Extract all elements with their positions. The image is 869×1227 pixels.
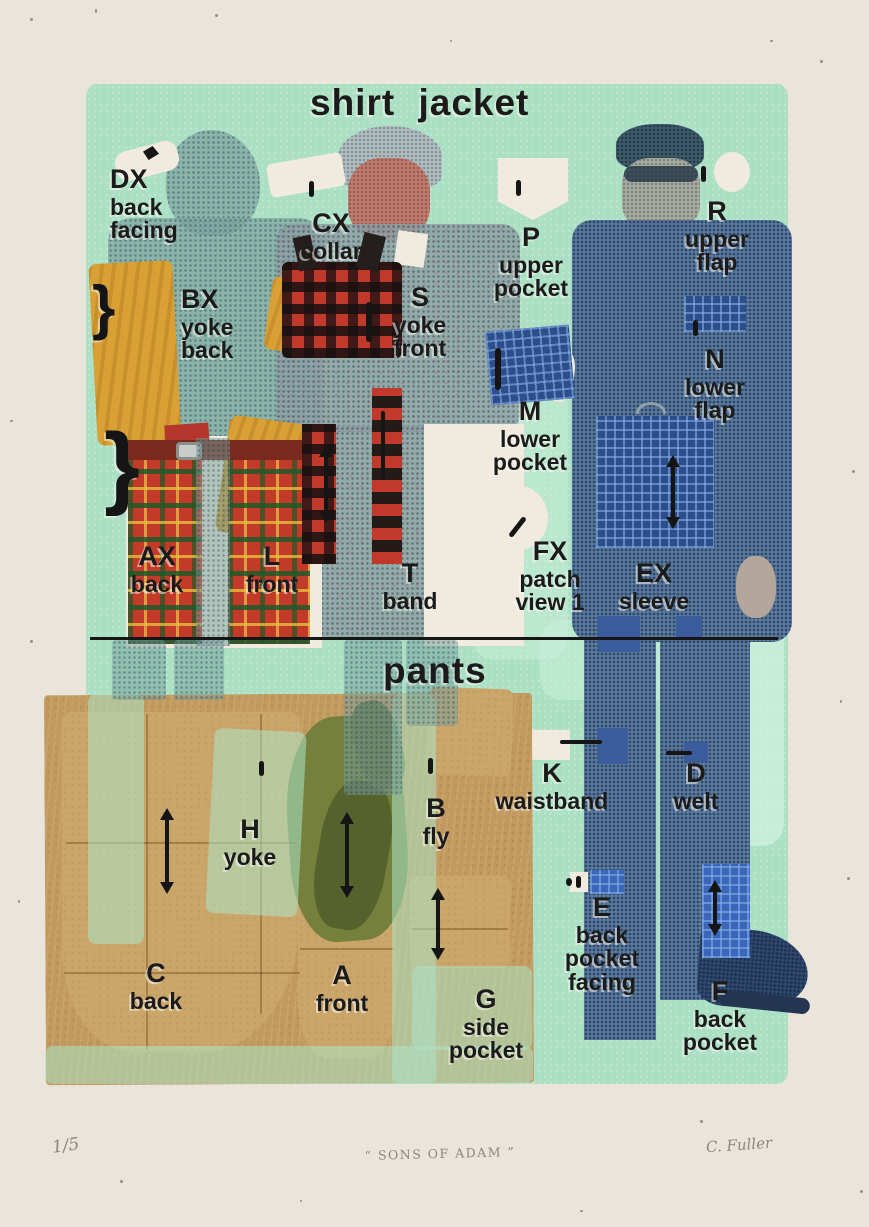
navy-patch (598, 728, 628, 764)
pattern-label-n: N lower flap (676, 346, 754, 423)
white-scrap (714, 152, 750, 192)
pattern-label-l: L front (236, 543, 308, 596)
green-wash (88, 694, 144, 944)
pattern-name: lower flap (676, 376, 754, 423)
right-man-hand (736, 556, 776, 618)
pattern-label-dx: DX back facing (110, 166, 220, 243)
pattern-code: EX (606, 560, 702, 587)
grain-line (381, 411, 385, 479)
pattern-label-ax: AX back (122, 543, 192, 596)
pattern-name: sleeve (606, 590, 702, 613)
artwork-title: “ SONS OF ADAM ” (355, 1144, 525, 1163)
pattern-code: B (408, 795, 464, 822)
pattern-code: D (662, 760, 730, 787)
pattern-label-m: M lower pocket (484, 398, 576, 475)
paper-speck (450, 40, 452, 42)
pattern-code: A (304, 962, 380, 989)
paper-speck (120, 1180, 123, 1183)
pattern-name: yoke back (181, 316, 267, 363)
grain-arrow (707, 880, 723, 936)
pattern-code: K (482, 760, 622, 787)
pattern-name: back pocket facing (550, 924, 654, 994)
pattern-name: upper pocket (489, 254, 573, 301)
notch-tick (428, 758, 433, 774)
ghost-leg-column (196, 438, 230, 646)
notch-dot (566, 878, 572, 886)
artist-signature: C. Fuller (705, 1134, 772, 1157)
blue-patch-e (590, 870, 624, 894)
pattern-label-f: F back pocket (668, 978, 772, 1055)
grain-arrow (339, 812, 355, 898)
paper-speck (10, 420, 13, 422)
blue-plaid-sleeve-ex (596, 416, 714, 548)
pattern-label-r: R upper flap (678, 198, 756, 275)
paper-speck (580, 1210, 583, 1212)
ghost-leg-column (174, 640, 224, 700)
notch-tick (259, 761, 264, 776)
paper-speck (95, 9, 97, 13)
grain-arrow (318, 445, 334, 523)
band-fabric-strip (372, 388, 402, 564)
notch-tick (309, 181, 314, 197)
grain-arrow (665, 455, 681, 529)
pattern-name: band (374, 590, 446, 613)
pattern-code: G (436, 986, 536, 1013)
ghost-leg-column (112, 640, 166, 700)
brace-mark: } (92, 278, 115, 338)
paper-speck (30, 640, 33, 643)
pattern-code: P (489, 224, 573, 251)
pattern-code: H (212, 816, 288, 843)
pattern-label-h: H yoke (212, 816, 288, 869)
pattern-name: fly (408, 825, 464, 848)
pattern-label-bx: BX yoke back (181, 286, 267, 363)
paper-speck (840, 700, 842, 703)
brace-mark: } (104, 420, 140, 512)
pattern-name: lower pocket (484, 428, 576, 475)
pattern-name: back (122, 573, 192, 596)
pattern-name: waistband (482, 790, 622, 813)
paper-speck (847, 877, 850, 880)
right-man-glasses (624, 166, 698, 182)
paper-speck (18, 900, 20, 903)
paper-speck (820, 60, 823, 63)
pattern-name: front (236, 573, 308, 596)
pattern-name: yoke front (378, 314, 462, 361)
pattern-code: S (378, 284, 462, 311)
buttonhole-mark (366, 302, 372, 342)
pattern-label-c: C back (118, 960, 194, 1013)
pattern-code: DX (110, 166, 220, 193)
welt-dash (666, 751, 692, 755)
pattern-code: CX (288, 210, 374, 237)
paper-speck (215, 14, 218, 17)
pattern-code: FX (502, 538, 598, 565)
pattern-code: N (676, 346, 754, 373)
pattern-name: upper flap (678, 228, 756, 275)
pattern-code: T (374, 560, 446, 587)
pattern-name: patch view 1 (502, 568, 598, 615)
pattern-label-b: B fly (408, 795, 464, 848)
pattern-name: yoke (212, 846, 288, 869)
edition-number: 1/5 (51, 1134, 81, 1158)
art-print: } } shirt jacket pants DX back facing CX… (0, 0, 869, 1227)
pattern-label-cx: CX collar (288, 210, 374, 263)
pattern-name: collar (288, 240, 374, 263)
paper-speck (30, 18, 33, 21)
navy-patch (598, 616, 640, 652)
pattern-name: side pocket (436, 1016, 536, 1063)
pattern-label-t: T band (374, 560, 446, 613)
pattern-label-fx: FX patch view 1 (502, 538, 598, 615)
paper-speck (770, 40, 773, 42)
pattern-label-a: A front (304, 962, 380, 1015)
pattern-code: BX (181, 286, 267, 313)
pattern-code: M (484, 398, 576, 425)
pattern-label-p: P upper pocket (489, 224, 573, 301)
pattern-name: back facing (110, 196, 220, 243)
pattern-label-ex: EX sleeve (606, 560, 702, 613)
section-title-shirt-jacket: shirt jacket (310, 82, 529, 124)
paper-speck (852, 470, 855, 473)
paper-speck (700, 1120, 703, 1123)
pattern-name: front (304, 992, 380, 1015)
grain-arrow (159, 808, 175, 894)
notch-tick (576, 876, 581, 888)
pattern-label-d: D welt (662, 760, 730, 813)
pattern-code: F (668, 978, 772, 1005)
pattern-name: welt (662, 790, 730, 813)
pattern-name: back pocket (668, 1008, 772, 1055)
section-title-pants: pants (383, 650, 487, 692)
buttonhole-mark (495, 348, 501, 390)
pattern-label-e: E back pocket facing (550, 894, 654, 994)
pattern-code: L (236, 543, 308, 570)
notch-tick (516, 180, 521, 196)
section-divider-line (90, 637, 778, 640)
paper-speck (860, 1190, 863, 1193)
pattern-code: C (118, 960, 194, 987)
grain-arrow (430, 888, 446, 960)
pattern-label-g: G side pocket (436, 986, 536, 1063)
pattern-code: E (550, 894, 654, 921)
pattern-code: R (678, 198, 756, 225)
waistband-line (560, 740, 602, 744)
pattern-name: back (118, 990, 194, 1013)
pattern-label-s: S yoke front (378, 284, 462, 361)
notch-tick (701, 166, 706, 182)
navy-patch (676, 616, 702, 638)
pattern-label-k: K waistband (482, 760, 622, 813)
pattern-code: AX (122, 543, 192, 570)
notch-tick (693, 320, 698, 336)
paper-speck (300, 1200, 302, 1202)
fold-line (300, 948, 394, 950)
